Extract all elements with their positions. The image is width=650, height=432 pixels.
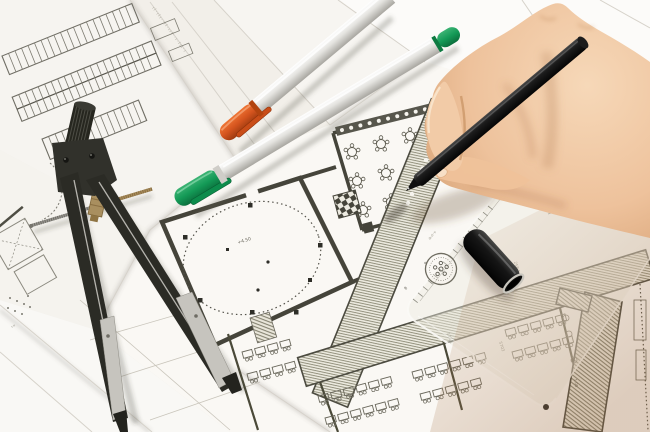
photo-architect-desk: ıl·ılı··ıl·ııl··ı·lıı·ı ı·ıı bbox=[0, 0, 650, 432]
